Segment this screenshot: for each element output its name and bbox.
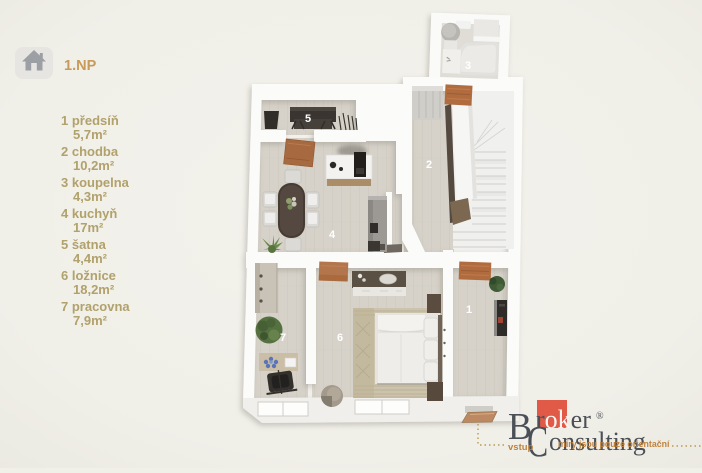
svg-text:6: 6 (337, 332, 343, 344)
svg-text:®: ® (596, 411, 604, 422)
svg-text:5: 5 (305, 113, 311, 125)
svg-text:vstup: vstup (508, 442, 534, 453)
svg-text:5,7m²: 5,7m² (73, 127, 108, 142)
svg-text:3: 3 (465, 60, 471, 72)
svg-text:7,9m²: 7,9m² (73, 313, 108, 328)
svg-text:4,3m²: 4,3m² (73, 189, 108, 204)
svg-text:2 chodba: 2 chodba (61, 144, 119, 159)
svg-text:5 šatna: 5 šatna (61, 237, 107, 252)
svg-text:míry jsou pouze orientační: míry jsou pouze orientační (558, 439, 670, 449)
svg-text:17m²: 17m² (73, 220, 104, 235)
svg-text:4,4m²: 4,4m² (73, 251, 108, 266)
svg-text:1.NP: 1.NP (64, 58, 97, 74)
svg-text:7: 7 (280, 332, 286, 344)
svg-text:3 koupelna: 3 koupelna (61, 175, 130, 190)
svg-text:18,2m²: 18,2m² (73, 282, 115, 297)
svg-text:7 pracovna: 7 pracovna (61, 299, 130, 314)
svg-text:10,2m²: 10,2m² (73, 158, 115, 173)
svg-text:4: 4 (329, 229, 336, 241)
svg-text:2: 2 (426, 159, 432, 171)
svg-text:1: 1 (466, 304, 472, 316)
svg-text:1 předsíň: 1 předsíň (61, 113, 119, 128)
svg-text:4 kuchyň: 4 kuchyň (61, 206, 117, 221)
svg-text:6 ložnice: 6 ložnice (61, 268, 116, 283)
